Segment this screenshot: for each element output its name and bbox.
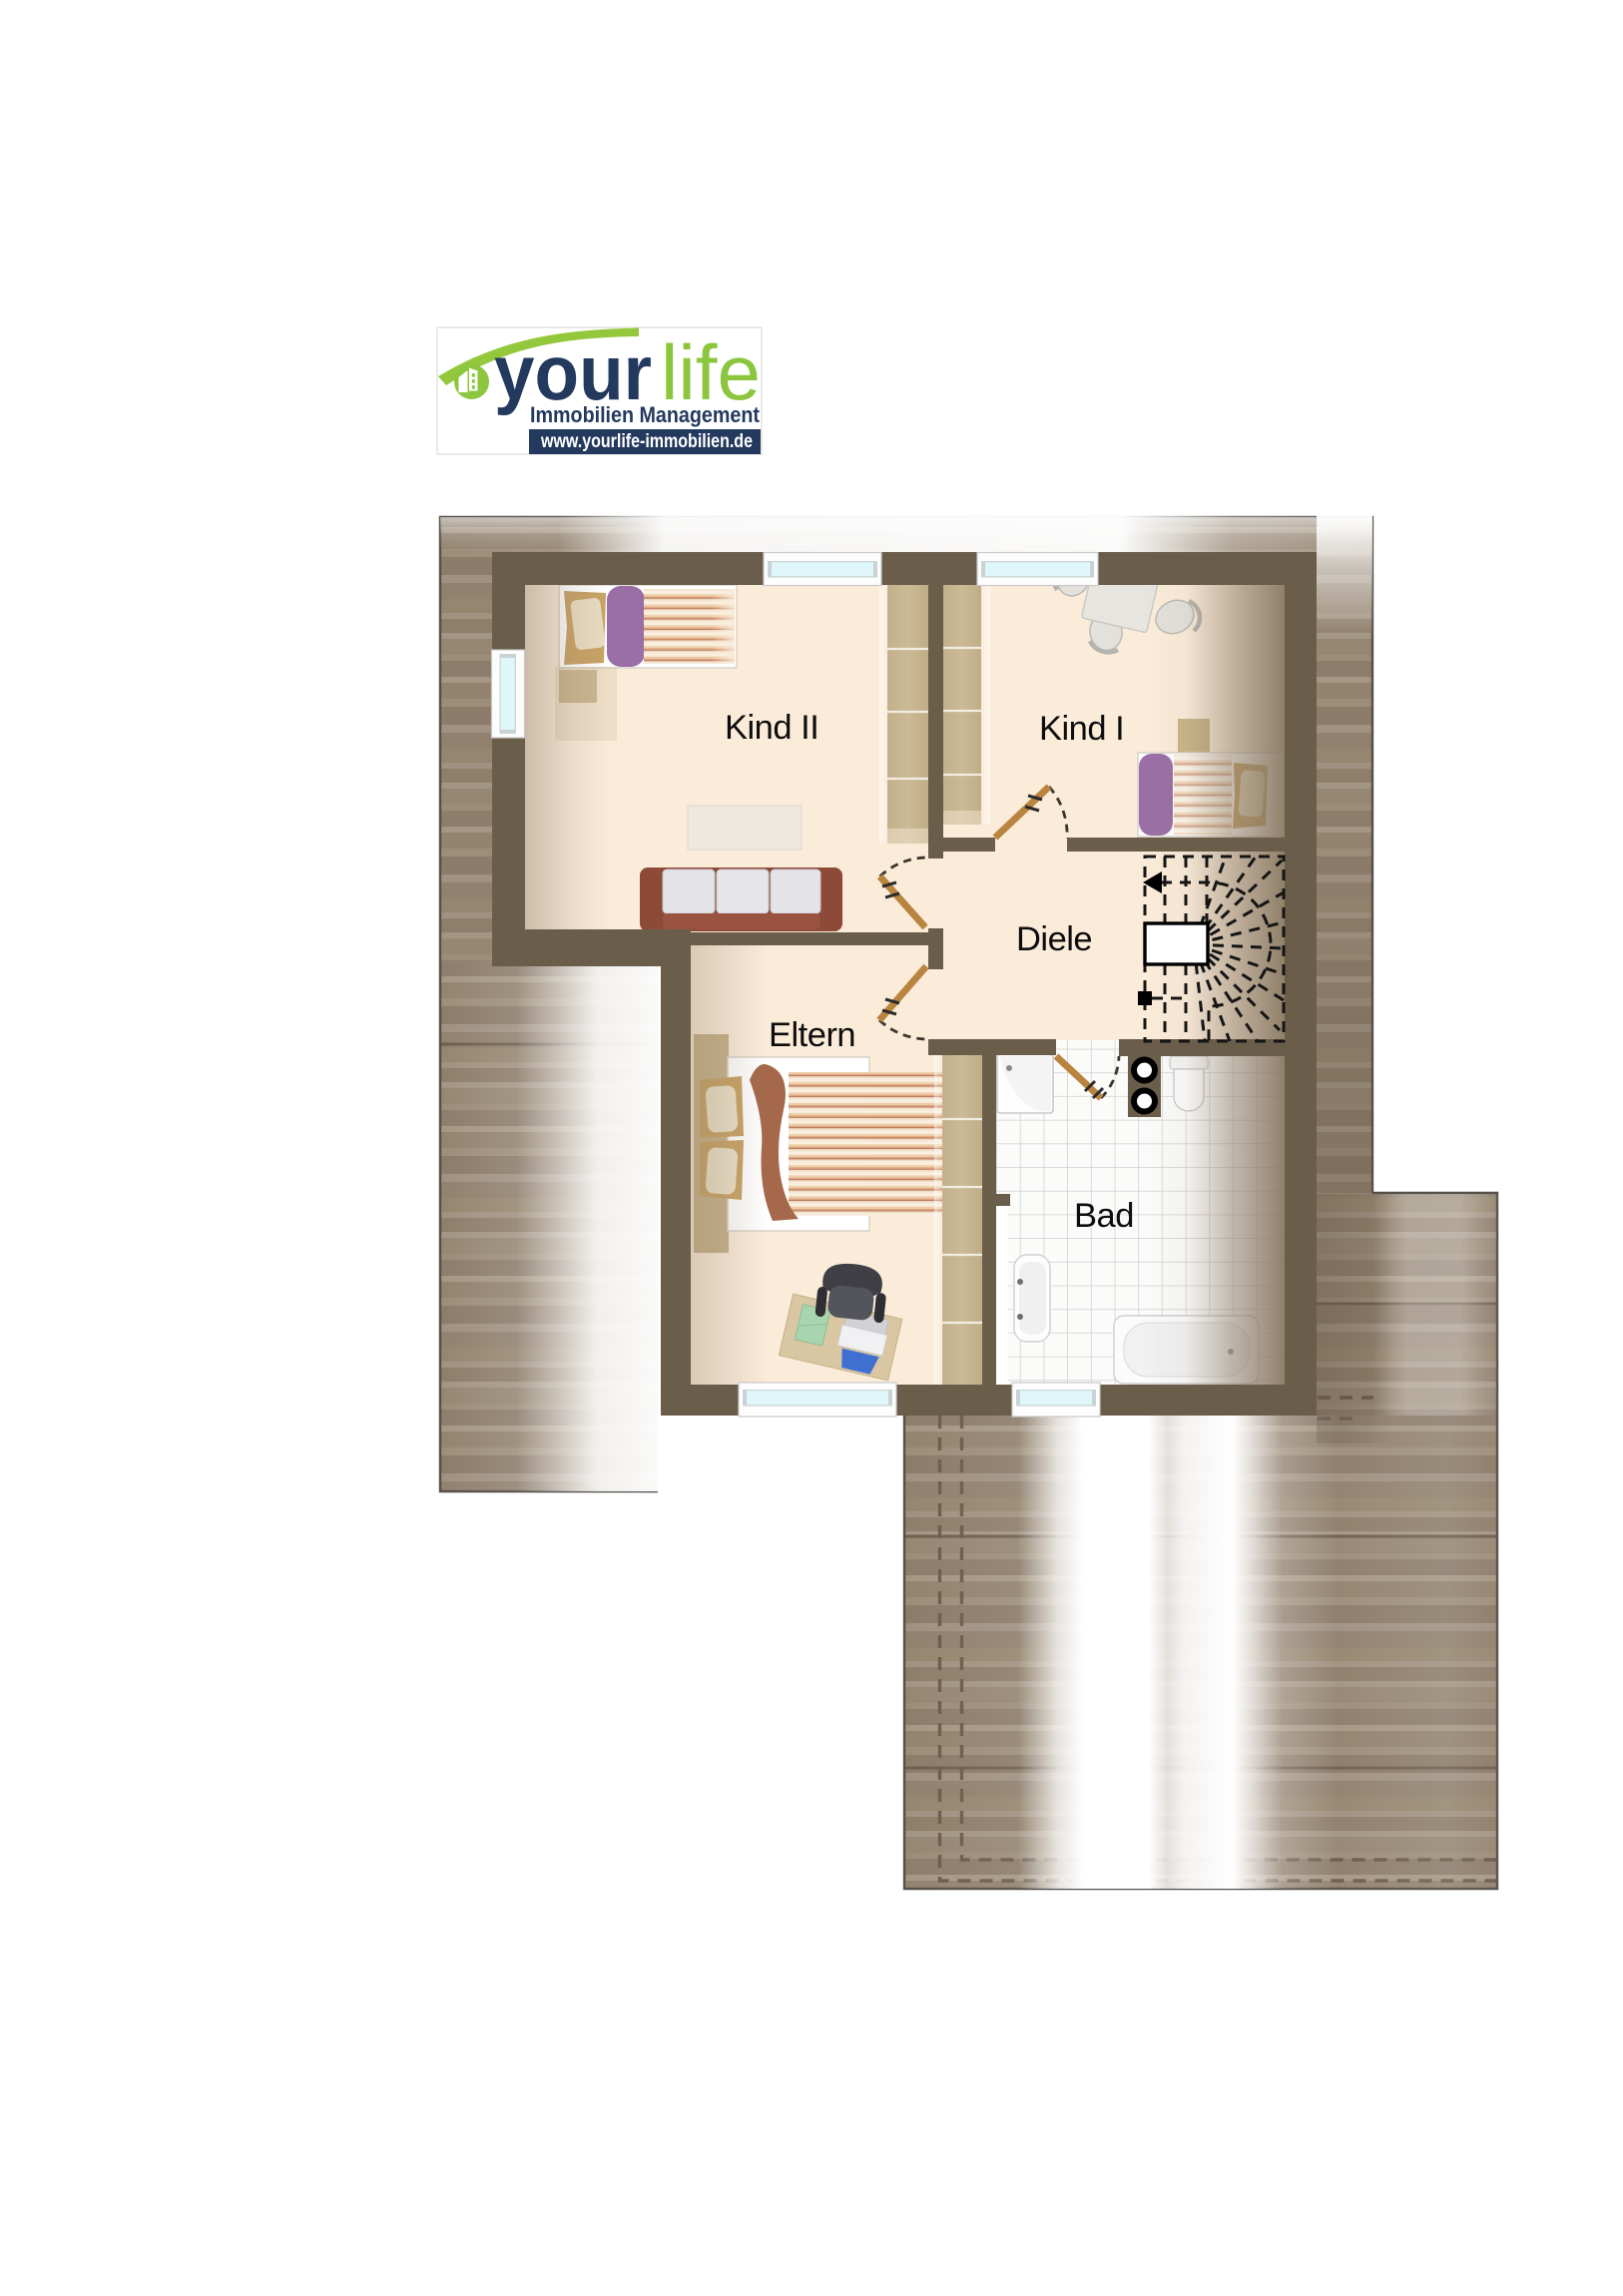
svg-text:Immobilien Management: Immobilien Management [530, 402, 761, 427]
svg-text:Kind II: Kind II [725, 709, 818, 747]
svg-text:Bad: Bad [1074, 1197, 1134, 1235]
svg-text:Eltern: Eltern [769, 1016, 855, 1054]
svg-text:Kind I: Kind I [1039, 710, 1124, 748]
svg-text:www.yourlife-immobilien.de: www.yourlife-immobilien.de [540, 430, 753, 452]
svg-text:Diele: Diele [1016, 920, 1092, 958]
